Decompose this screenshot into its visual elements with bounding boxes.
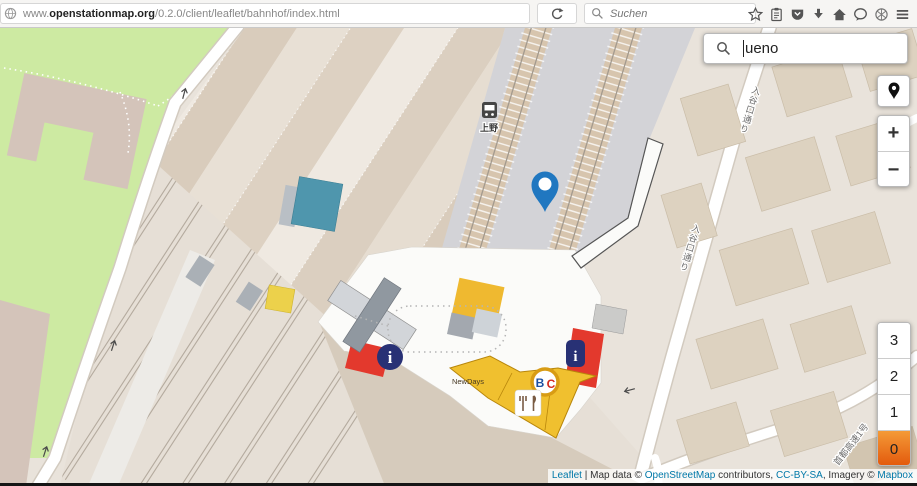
address-bar[interactable]: www.openstationmap.org/0.2.0/client/leaf… <box>0 3 530 24</box>
floor-button-3[interactable]: 3 <box>878 323 910 359</box>
menu-icon[interactable] <box>894 6 911 23</box>
restaurant-icon[interactable] <box>515 390 541 416</box>
svg-text:i: i <box>388 348 393 367</box>
place-pin-icon <box>887 82 901 100</box>
chat-bubble-icon[interactable] <box>852 6 869 23</box>
map-canvas[interactable]: i i B C NewDays 上野 入谷口通り 入谷口通り 首都高速1号 <box>0 28 917 486</box>
svg-text:i: i <box>573 349 577 365</box>
map-area: i i B C NewDays 上野 入谷口通り 入谷口通り 首都高速1号 <box>0 28 917 486</box>
station-name-label: 上野 <box>480 122 498 133</box>
zoom-control: + − <box>877 115 910 187</box>
svg-text:C: C <box>547 377 556 391</box>
pocket-icon[interactable] <box>789 6 806 23</box>
downloads-icon[interactable] <box>810 6 827 23</box>
info-icon-west[interactable]: i <box>377 344 403 370</box>
url-text: www.openstationmap.org/0.2.0/client/leaf… <box>23 8 340 20</box>
station-icon <box>482 102 497 118</box>
info-icon-east[interactable]: i <box>566 340 585 367</box>
yellow-kiosk <box>265 285 295 313</box>
browser-search-field[interactable] <box>584 3 756 24</box>
locate-button[interactable] <box>877 75 910 107</box>
toolbar-icon-group <box>747 0 911 28</box>
leaflet-link[interactable]: Leaflet <box>552 470 582 481</box>
text-cursor <box>743 40 744 57</box>
floor-button-0-active[interactable]: 0 <box>878 431 910 466</box>
floor-button-1[interactable]: 1 <box>878 395 910 431</box>
reload-button[interactable] <box>537 3 577 24</box>
home-icon[interactable] <box>831 6 848 23</box>
reload-icon <box>550 7 564 21</box>
page-globe-icon <box>4 7 17 20</box>
osm-link[interactable]: OpenStreetMap <box>645 470 716 481</box>
bookmark-star-icon[interactable] <box>747 6 764 23</box>
map-search-icon <box>716 41 731 56</box>
browser-search-input[interactable] <box>608 7 742 21</box>
floor-selector: 3 2 1 0 <box>877 322 911 466</box>
zoom-out-button[interactable]: − <box>878 152 909 188</box>
map-search-value: ueno <box>745 40 778 57</box>
url-domain: openstationmap.org <box>49 8 155 20</box>
search-icon <box>591 7 604 20</box>
floor-button-2[interactable]: 2 <box>878 359 910 395</box>
map-attribution: Leaflet | Map data © OpenStreetMap contr… <box>548 469 917 483</box>
extension-globe-icon[interactable] <box>873 6 890 23</box>
license-link[interactable]: CC-BY-SA <box>776 470 823 481</box>
map-search-box[interactable]: ueno <box>703 33 908 64</box>
reading-list-icon[interactable] <box>768 6 785 23</box>
mapbox-link[interactable]: Mapbox <box>877 470 913 481</box>
browser-toolbar: www.openstationmap.org/0.2.0/client/leaf… <box>0 0 917 28</box>
svg-text:B: B <box>536 376 545 390</box>
zoom-in-button[interactable]: + <box>878 116 909 152</box>
shop-label-newdays: NewDays <box>452 377 484 386</box>
